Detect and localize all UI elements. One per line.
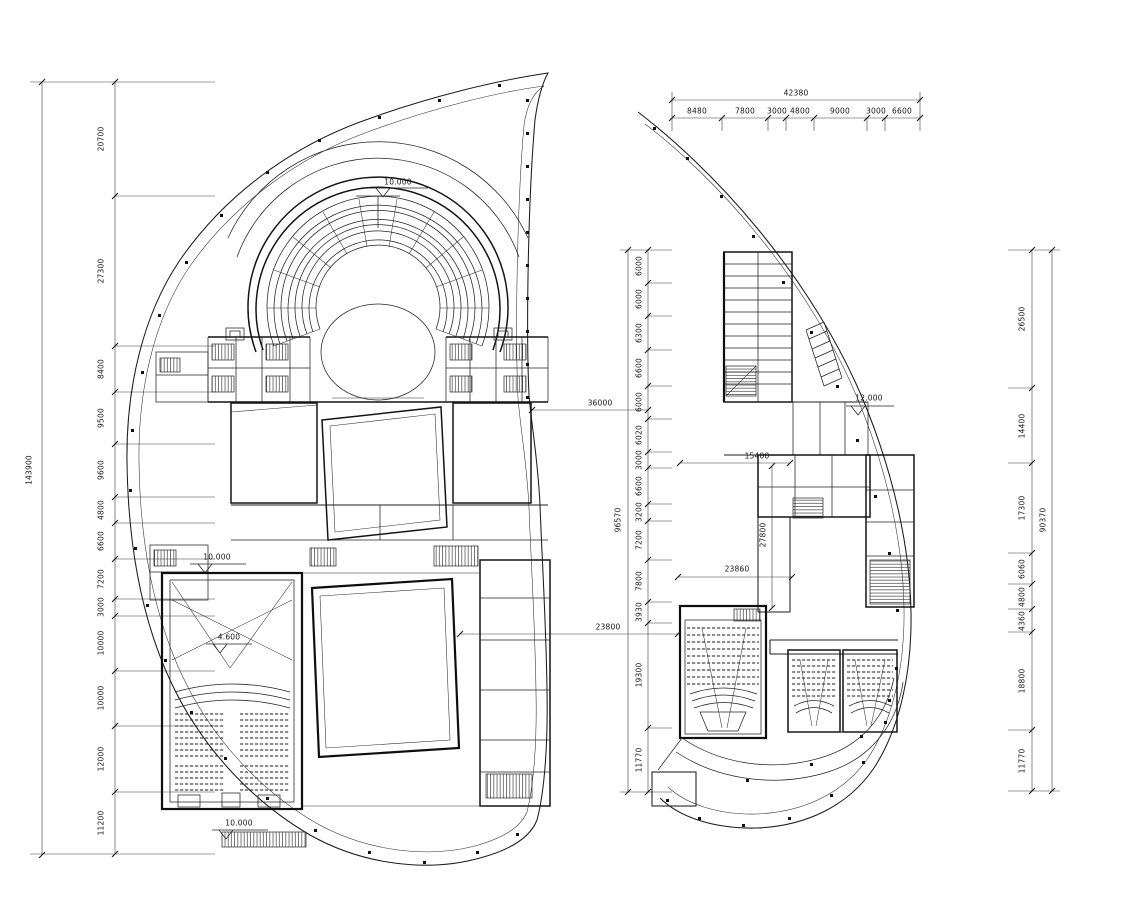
- dim-label: 20700: [97, 127, 105, 152]
- dim-label: 9000: [830, 107, 850, 115]
- dim-label: 6020: [635, 425, 643, 445]
- dim-label: 3000: [866, 107, 886, 115]
- dim-label: 15400: [745, 452, 770, 460]
- dim-label: 11200: [97, 811, 105, 836]
- dim-label: 6000: [635, 392, 643, 412]
- floor-plan-drawing: [0, 0, 1139, 908]
- dim-label: 4800: [97, 500, 105, 520]
- total-dim-label: 96570: [614, 508, 622, 533]
- dim-label: 10000: [97, 631, 105, 656]
- dim-label: 7200: [635, 530, 643, 550]
- elevation-label: 10.000: [225, 819, 252, 827]
- dim-label: 11770: [1018, 749, 1026, 774]
- left-plan: [127, 73, 550, 865]
- column-dots: [129, 84, 899, 864]
- dim-label: 36000: [588, 399, 613, 407]
- dim-label: 11770: [635, 748, 643, 773]
- total-dim-label: 90370: [1039, 508, 1047, 533]
- dim-label: 4360: [1018, 611, 1026, 631]
- dim-label: 27800: [759, 523, 767, 548]
- dim-label: 9500: [97, 408, 105, 428]
- dim-label: 8400: [97, 359, 105, 379]
- dimension-linework: [30, 79, 1060, 858]
- dim-label: 7800: [735, 107, 755, 115]
- dim-label: 3000: [767, 107, 787, 115]
- dim-label: 7200: [97, 569, 105, 589]
- total-dim-label: 42380: [784, 89, 809, 97]
- elevation-label: 10.000: [384, 178, 411, 186]
- dim-label: 3930: [635, 602, 643, 622]
- dim-label: 6600: [635, 358, 643, 378]
- dim-label: 18800: [1018, 669, 1026, 694]
- dim-label: 6000: [635, 256, 643, 276]
- dim-label: 9600: [97, 460, 105, 480]
- dim-label: 19300: [635, 663, 643, 688]
- dim-label: 6600: [892, 107, 912, 115]
- dim-label: 3000: [97, 597, 105, 617]
- elevation-label: 4.600: [218, 633, 240, 641]
- dim-label: 6000: [635, 289, 643, 309]
- elevation-label: 10.000: [203, 553, 230, 561]
- dim-label: 14400: [1018, 414, 1026, 439]
- dim-label: 10000: [97, 686, 105, 711]
- dim-label: 27300: [97, 259, 105, 284]
- dim-label: 26500: [1018, 307, 1026, 332]
- dim-label: 6600: [635, 476, 643, 496]
- total-dim-label: 143900: [25, 455, 33, 485]
- elevation-label: 12.000: [855, 394, 882, 402]
- dim-label: 17300: [1018, 496, 1026, 521]
- dim-label: 6060: [1018, 559, 1026, 579]
- dim-label: 7800: [635, 571, 643, 591]
- cad-sheet: 20700 27300 8400 9500 9600 4800 6600 720…: [0, 0, 1139, 908]
- right-plan: [638, 112, 914, 828]
- dim-label: 3200: [635, 502, 643, 522]
- dim-label: 6600: [97, 531, 105, 551]
- dim-label: 23860: [725, 565, 750, 573]
- dim-label: 8480: [687, 107, 707, 115]
- dim-label: 3000: [635, 450, 643, 470]
- dim-label: 4800: [790, 107, 810, 115]
- dim-label: 23800: [596, 623, 621, 631]
- dim-label: 6300: [635, 323, 643, 343]
- dim-label: 4800: [1018, 587, 1026, 607]
- dim-label: 12000: [97, 747, 105, 772]
